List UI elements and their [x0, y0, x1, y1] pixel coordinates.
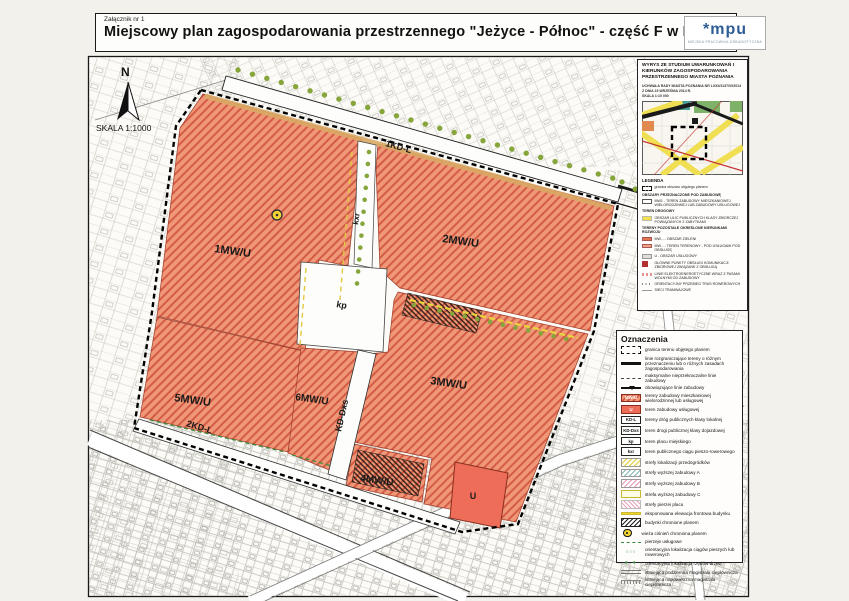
legend-item: kxrteren publicznego ciągu pieszo-rowero… [621, 447, 738, 456]
legend-item: istniejąca podziemna magistrala ciepłown… [621, 570, 738, 575]
legend-item: MW... - TEREN TERENOWY - POD USŁUGAMI PO… [642, 244, 744, 252]
code-icon: kxr [621, 447, 641, 456]
legend-item: KD-Dxsteren drogi publicznej klasy dojaz… [621, 426, 738, 435]
attachment-label: Załącznik nr 1 [104, 16, 728, 23]
path-kxr [354, 141, 376, 268]
legend-item-label: OBSZARY PRZEZNACZONE POD ZABUDOWĘ [642, 193, 721, 197]
legend-item-label: orientacyjna lokalizacja rzędów drzew [645, 561, 722, 566]
north-letter: N [121, 65, 130, 79]
legend-item: TERENY POZOSTAŁE OKREŚLONE KIERUNKAMI RO… [642, 226, 744, 234]
area-label-u: U [470, 491, 477, 501]
block-u [450, 462, 508, 528]
legend-item-label: strefy wyższej zabudowy B [645, 481, 700, 486]
i-dots-icon [642, 283, 652, 285]
hatch-pink-icon [621, 479, 641, 488]
legend-item-label: strefy pierzei placu [645, 502, 683, 507]
legend-item-label: istniejąca podziemna magistrala ciepłown… [645, 570, 738, 575]
code-icon: kp [621, 437, 641, 446]
legend-item: strefy lokalizacji przedogródków [621, 458, 738, 467]
scale-label: SKALA 1:1000 [96, 123, 152, 133]
legend-item: OBSZARY PRZEZNACZONE POD ZABUDOWĘ [642, 193, 744, 197]
legend-items: granica terenu objętego planemlinie rozg… [621, 346, 738, 587]
legend-item-label: istniejąca napowietrzna magistrala ciepł… [645, 577, 738, 587]
legend-item: U - OBSZAR USŁUGOWY [642, 254, 744, 259]
hatch-teal-icon [621, 469, 641, 478]
legend-item-label: maksymalne nieprzekraczalne linie zabudo… [645, 373, 738, 383]
i-salmon-icon [642, 244, 652, 249]
legend-item: GŁÓWNE PUNKTY OBSŁUGI KOMUNIKACJI ZBIORO… [642, 261, 744, 269]
path-label-kxr: kxr [351, 212, 362, 225]
legend-item-label: pierzeje usługowe [645, 539, 682, 544]
studium-minimap [642, 101, 743, 175]
legend-item: SIECI TRAMWAJOWE [642, 288, 744, 292]
legend-item-label: SIECI TRAMWAJOWE [655, 288, 692, 292]
legend-item: kpteren placu miejskiego [621, 437, 738, 446]
legend-item: maksymalne nieprzekraczalne linie zabudo… [621, 373, 738, 383]
legend-item-label: eksponowana elewacja frontowa budynku [645, 511, 730, 516]
inset-legend-title: LEGENDA [642, 178, 744, 183]
i-dash-icon [642, 186, 652, 191]
legend-item: LINIE ELEKTROENERGETYCZNE WRAZ Z PASAMI … [642, 272, 744, 280]
inset-subtitle: UCHWAŁA RADY MIASTA POZNANIA NR LXXII/11… [642, 84, 744, 93]
legend-item: orientacyjna lokalizacja rzędów drzew [621, 559, 738, 568]
legend-item-label: linie rozgraniczające tereny o różnym pr… [645, 356, 738, 371]
hatch-black-icon [621, 518, 641, 527]
legend-item-label: MW... - TEREN TERENOWY - POD USŁUGAMI PO… [655, 244, 745, 252]
legend-item: orientacyjna lokalizacja ciągów pieszych… [621, 547, 738, 557]
legend-item-label: granica obszaru objętego planem [655, 185, 708, 189]
legend-item: ORIENTACYJNY PRZEBIEG TRAS ROWEROWYCH [642, 282, 744, 286]
code-icon: KD-L [621, 416, 641, 425]
legend-item-label: strefy lokalizacji przedogródków [645, 460, 710, 465]
legend-item-label: GŁÓWNE PUNKTY OBSŁUGI KOMUNIKACJI ZBIORO… [655, 261, 745, 269]
legend-item: wieża ciśnień chroniona planem [621, 529, 738, 538]
legend-item-label: tereny zabudowy mieszkaniowej wielorodzi… [645, 393, 738, 403]
swatch-outline-yellow-icon [621, 490, 641, 499]
legend-item-label: teren publicznego ciągu pieszo-roweroweg… [645, 449, 735, 454]
legend-item-label: strefy wyższej zabudowy A [645, 470, 700, 475]
legend-item-label: orientacyjna lokalizacja ciągów pieszych… [645, 547, 738, 557]
inset-scale: SKALA 1:10 000 [642, 94, 744, 98]
legend-item-label: wieża ciśnień chroniona planem [642, 531, 707, 536]
dots-open-icon [621, 548, 641, 557]
boundary-icon [621, 346, 641, 354]
legend-item-label: OBSZAR ULIC PUBLICZNYCH KLASY ZBIORCZEJ … [655, 216, 745, 224]
line-dashdot-icon [621, 378, 641, 379]
legend-item: MW/Utereny zabudowy mieszkaniowej wielor… [621, 393, 738, 403]
legend-item-label: obowiązujące linie zabudowy [645, 385, 704, 390]
line-ticked-icon [621, 580, 641, 584]
legend-item: budynki chronione planem [621, 518, 738, 527]
legend-item-label: teren zabudowy usługowej [645, 407, 699, 412]
legend-item-label: TERENY POZOSTAŁE OKREŚLONE KIERUNKAMI RO… [642, 226, 744, 234]
i-red-icon [642, 261, 648, 267]
swatch-u-icon: U [621, 405, 641, 414]
water-tower-icon [272, 210, 282, 220]
inset-title: WYRYS ZE STUDIUM UWARUNKOWAŃ I KIERUNKÓW… [642, 63, 744, 81]
legend-item: eksponowana elewacja frontowa budynku [621, 511, 738, 516]
i-yellow-icon [642, 216, 652, 221]
header: Załącznik nr 1 Miejscowy plan zagospodar… [95, 13, 737, 52]
legend-item-label: MW1 - TEREN ZABUDOWY MIESZKANIOWEJ WIELO… [655, 199, 745, 207]
legend-item-label: ORIENTACYJNY PRZEBIEG TRAS ROWEROWYCH [655, 282, 741, 286]
i-outline-icon [642, 199, 652, 204]
tower-icon [623, 529, 632, 538]
dash-green-icon [621, 542, 641, 543]
legend-item-label: budynki chronione planem [645, 520, 699, 525]
legend-item: KD-Ltereny dróg publicznych klasy lokaln… [621, 416, 738, 425]
legend-title: Oznaczenia [621, 334, 738, 344]
mpu-logo-text: *mpu [685, 21, 765, 39]
i-line-icon [642, 290, 652, 291]
legend-item: granica terenu objętego planem [621, 346, 738, 354]
hatch-yellow-icon [621, 458, 641, 467]
legend-box: Oznaczenia granica terenu objętego plane… [616, 330, 743, 563]
legend-item: linie rozgraniczające tereny o różnym pr… [621, 356, 738, 371]
hatch-rose-icon [621, 500, 641, 509]
i-pink-icon [642, 273, 652, 276]
legend-item-label: MW... - OBSZAR ZIELENI [655, 237, 697, 241]
legend-item-label: LINIE ELEKTROENERGETYCZNE WRAZ Z PASAMI … [655, 272, 745, 280]
mpu-logo: *mpu MIEJSKA PRACOWNIA URBANISTYCZNA [684, 16, 766, 50]
legend-item-label: TEREN DROGOWY [642, 209, 675, 213]
legend-item: istniejąca napowietrzna magistrala ciepł… [621, 577, 738, 587]
legend-item: strefy pierzei placu [621, 500, 738, 509]
legend-item-label: U - OBSZAR USŁUGOWY [655, 254, 698, 258]
legend-item: granica obszaru objętego planem [642, 185, 744, 190]
scanned-plan-page: 1KD-L 2KD-L KD-Dxs kxr kp 1MW/U 2MW/U 3M… [0, 0, 849, 601]
legend-item: strefy wyższej zabudowy B [621, 479, 738, 488]
line-triangle-icon [621, 387, 641, 389]
legend-item: MW1 - TEREN ZABUDOWY MIESZKANIOWEJ WIELO… [642, 199, 744, 207]
mpu-logo-subtext: MIEJSKA PRACOWNIA URBANISTYCZNA [685, 40, 765, 44]
inset-legend-items: granica obszaru objętego planemOBSZARY P… [642, 185, 744, 292]
legend-item-label: tereny dróg publicznych klasy lokalnej [645, 417, 722, 422]
i-gray-icon [642, 254, 652, 259]
swatch-mwu-icon: MW/U [621, 394, 641, 403]
legend-item: OBSZAR ULIC PUBLICZNYCH KLASY ZBIORCZEJ … [642, 216, 744, 224]
legend-item: strefa wyższej zabudowy C [621, 490, 738, 499]
line-double-icon [621, 570, 641, 574]
code-icon: KD-Dxs [621, 426, 641, 435]
legend-item: Uteren zabudowy usługowej [621, 405, 738, 414]
legend-item: pierzeje usługowe [621, 539, 738, 544]
legend-item-label: teren drogi publicznej klasy dojazdowej [645, 428, 725, 433]
line-thick-icon [621, 362, 641, 365]
legend-item-label: granica terenu objętego planem [645, 347, 710, 352]
line-yellow-icon [621, 512, 641, 516]
legend-item-label: strefa wyższej zabudowy C [645, 492, 700, 497]
legend-item: obowiązujące linie zabudowy [621, 385, 738, 390]
legend-item-label: teren placu miejskiego [645, 439, 691, 444]
page-title: Miejscowy plan zagospodarowania przestrz… [104, 24, 728, 40]
legend-item: MW... - OBSZAR ZIELENI [642, 237, 744, 242]
legend-item: strefy wyższej zabudowy A [621, 469, 738, 478]
studium-inset: WYRYS ZE STUDIUM UWARUNKOWAŃ I KIERUNKÓW… [637, 59, 748, 311]
dots-green-icon [621, 559, 641, 568]
i-orange-icon [642, 237, 652, 242]
legend-item: TEREN DROGOWY [642, 209, 744, 213]
